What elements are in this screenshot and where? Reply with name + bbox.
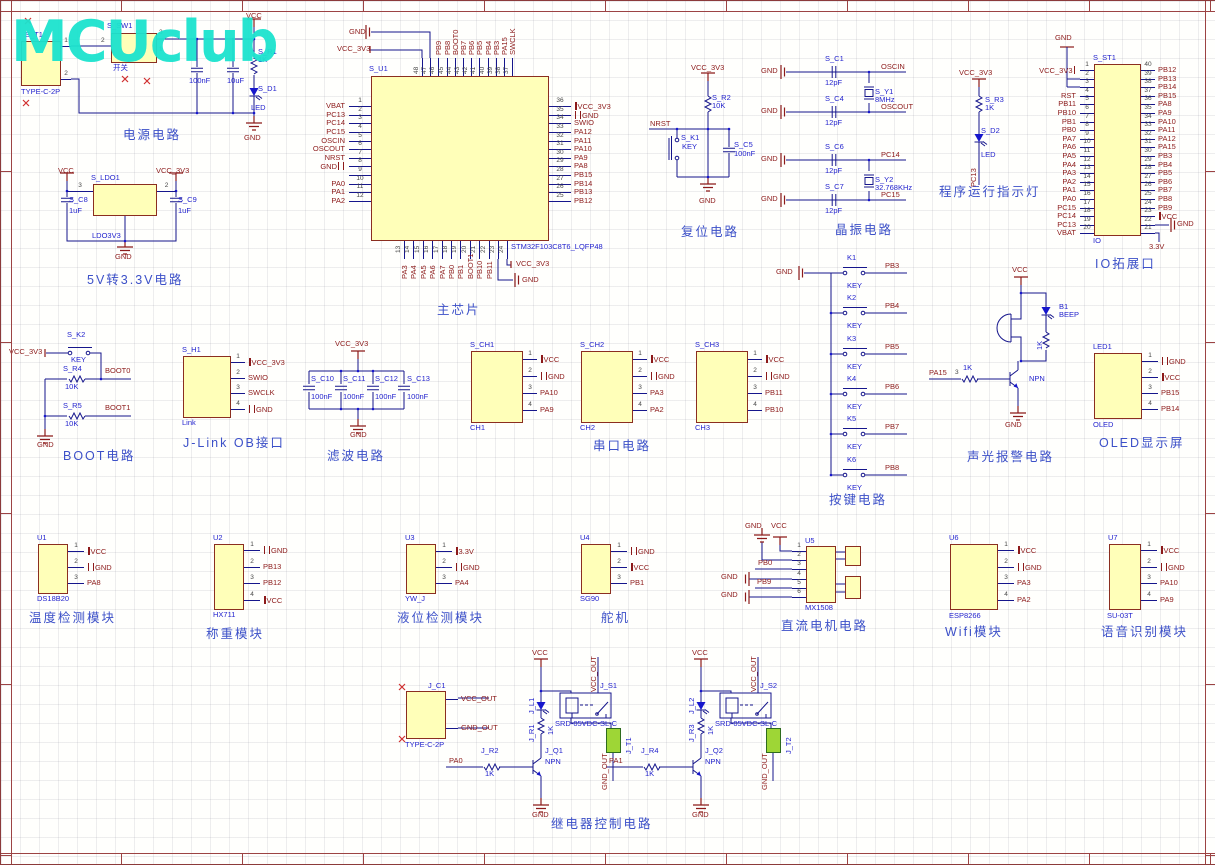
u6-partname: ESP8266 (949, 612, 981, 620)
st1-pin-number: 36 (1141, 95, 1155, 103)
led1-designator: LED1 (1093, 343, 1112, 351)
k1-des: S_K1 (681, 134, 699, 142)
k2-des: S_K2 (67, 331, 85, 339)
u3-pin-stub (436, 551, 452, 552)
jq1-des: J_Q1 (545, 747, 563, 755)
ch1-pin-stub (523, 376, 537, 377)
mainchip-net-text: PB14 (574, 179, 592, 188)
jr4-val: 1K (645, 770, 654, 778)
c7-val: 12pF (825, 207, 842, 215)
h1-body (183, 356, 231, 418)
mainchip-pin-number: 45 (438, 67, 446, 74)
u6-net-text: PA2 (1017, 595, 1031, 604)
u2-designator: U2 (213, 534, 223, 542)
ch1-net: PA9 (540, 406, 554, 414)
mainchip-net-text: PC14 (326, 118, 345, 127)
st1-pin-number: 10 (1080, 138, 1094, 146)
st1-pin-number: 39 (1141, 70, 1155, 78)
st1-pin-number: 4 (1080, 87, 1094, 95)
ch2-net: PA2 (650, 406, 664, 414)
ch3-pin-number: 1 (748, 350, 762, 358)
u3-partname: YW_J (405, 595, 425, 603)
r3-val: 1K (985, 104, 994, 112)
u6-net: PA2 (1017, 596, 1031, 604)
ch1-net-text: GND (548, 372, 565, 381)
k3b-net: PB5 (885, 343, 899, 351)
mainchip-net: PB12 (574, 197, 592, 205)
mainchip-net: PB0 (448, 265, 456, 279)
jt2-des: J_T2 (785, 737, 793, 754)
st1-pin-number: 40 (1141, 61, 1155, 69)
jr2-val: 1K (485, 770, 494, 778)
u2-pin-stub (244, 583, 260, 584)
js1-des: J_S1 (600, 682, 617, 690)
mainchip-pin-number: 3 (349, 114, 371, 122)
k2b-net: PB4 (885, 302, 899, 310)
k1-sub: KEY (682, 143, 697, 151)
u4-net: GND (630, 547, 655, 556)
mainchip-net: PB1 (457, 265, 465, 279)
ch2-net: VCC (650, 355, 669, 364)
h1-pin-stub (231, 393, 245, 394)
st1-pin-number: 16 (1080, 190, 1094, 198)
u7-pin-number: 4 (1141, 591, 1157, 599)
io-caption: IO拓展口 (1095, 257, 1156, 271)
jc1-designator: J_C1 (428, 682, 446, 690)
mainchip-net-text: OSCOUT (313, 144, 345, 153)
boot-vcc: VCC_3V3 (9, 348, 42, 356)
mainchip-net-text: OSCIN (321, 136, 345, 145)
h1-net: VCC_3V3 (248, 358, 285, 367)
ch3-net: VCC (765, 355, 784, 364)
mot-caption: 直流电机电路 (781, 619, 868, 633)
ch2-pin-number: 1 (633, 350, 647, 358)
k3b-sub: KEY (847, 363, 862, 371)
c7-des: S_C7 (825, 183, 844, 191)
u7-designator: U7 (1108, 534, 1118, 542)
ch3-pin-stub (748, 359, 762, 360)
mainchip-net-text: PB12 (574, 196, 592, 205)
led1-pin-stub (1142, 393, 1158, 394)
ldo-net: LDO3V3 (92, 232, 121, 240)
ser-caption: 串口电路 (593, 439, 651, 453)
gnd-symbol-icon (264, 546, 270, 554)
ch1-net-text: VCC (544, 355, 560, 364)
u1-pin-stub (68, 567, 84, 568)
st1-pin-number: 21 (1141, 224, 1155, 232)
u4-pin-number: 2 (611, 558, 627, 566)
xt-gnd2: GND (761, 107, 778, 115)
u7-pin-number: 3 (1141, 574, 1157, 582)
led1-pin-number: 2 (1142, 368, 1158, 376)
u2-pin-stub (244, 550, 260, 551)
boot-gnd: GND (37, 441, 54, 449)
u3-pin-stub (436, 583, 452, 584)
ch2-pin-stub (633, 393, 647, 394)
mcuclub-watermark: MCUclub (11, 9, 277, 75)
u4-net: VCC (630, 563, 649, 572)
u7-partname: SU-03T (1107, 612, 1133, 620)
mainchip-pin-number: 15 (414, 246, 422, 253)
u1-net: PA8 (87, 579, 101, 587)
st1-designator: S_ST1 (1093, 54, 1116, 62)
h1-pin-stub (231, 362, 245, 363)
mainchip-net-text: PA1 (331, 187, 345, 196)
u4-partname: SG90 (580, 595, 599, 603)
u2-net-text: VCC (267, 596, 283, 605)
c8-des: S_C8 (69, 196, 88, 204)
mainchip-net-text: PA10 (574, 144, 592, 153)
alm-gnd: GND (1005, 421, 1022, 429)
u2-pin-stub (244, 567, 260, 568)
xt-gnd4: GND (761, 195, 778, 203)
st1-pin-number: 18 (1080, 207, 1094, 215)
u1-pin-number: 3 (68, 574, 84, 582)
led1-net: PB15 (1161, 389, 1179, 397)
u5-pin-number: 2 (792, 551, 806, 559)
st1-pin-number: 20 (1080, 224, 1094, 232)
jr3-des: J_R3 (688, 724, 696, 742)
ch3-pin-number: 3 (748, 384, 762, 392)
mainchip-pin-number: 28 (549, 166, 571, 174)
led1-pin-number: 1 (1142, 352, 1158, 360)
u6-pin-number: 2 (998, 558, 1014, 566)
ch3-net: GND (765, 372, 790, 381)
mainchip-pin-number: 37 (503, 67, 511, 74)
ch1-body (471, 351, 523, 423)
mainchip-pin-stub (549, 201, 571, 202)
mainchip-pin-number: 1 (349, 97, 371, 105)
led1-net: GND (1161, 357, 1186, 366)
st1-pin-number: 29 (1141, 156, 1155, 164)
st1-pin-number: 11 (1080, 147, 1094, 155)
u6-pin-stub (998, 567, 1014, 568)
ch3-body (696, 351, 748, 423)
jc1-net: VCC_OUT (461, 695, 497, 703)
u1-body (38, 544, 68, 594)
u3-net-text: GND (463, 563, 480, 572)
ch2-body (581, 351, 633, 423)
u3-net: GND (455, 563, 480, 572)
jlink-caption: J-Link OB接口 (183, 436, 285, 450)
mainchip-net: PA3 (401, 265, 409, 279)
u6-pin-number: 1 (998, 541, 1014, 549)
jq2-sub: NPN (705, 758, 721, 766)
u2-pin-number: 1 (244, 541, 260, 549)
gt1-body (606, 728, 621, 753)
mainchip-pin-number: 32 (549, 132, 571, 140)
power-bar-icon (651, 355, 653, 363)
xt-gnd1: GND (761, 67, 778, 75)
c6-des: S_C6 (825, 143, 844, 151)
r4-val: 10K (65, 383, 78, 391)
u7-net-text: VCC (1164, 546, 1180, 555)
h1-pin-number: 2 (231, 369, 245, 377)
r2-val: 10K (712, 102, 725, 110)
k4b-des: K4 (847, 375, 856, 383)
st1-pin-number: 37 (1141, 87, 1155, 95)
chip-vcc-bot: VCC_3V3 (516, 260, 549, 268)
u3-body (406, 544, 436, 594)
led1-net-text: VCC (1165, 373, 1181, 382)
mainchip-net: PB10 (476, 261, 484, 279)
power-bar-icon (1162, 373, 1164, 381)
ch3-net: PB11 (765, 389, 783, 397)
alm-vcc: VCC (1012, 266, 1028, 274)
power-bar-icon (1074, 66, 1076, 74)
xt-caption: 晶振电路 (835, 223, 893, 237)
mainchip-partname: STM32F103C8T6_LQFP48 (511, 243, 603, 251)
jq1-sub: NPN (545, 758, 561, 766)
u3-net: 3.3V (455, 547, 474, 556)
u7-net-text: PA10 (1160, 578, 1178, 587)
mot-gnd-top: GND (745, 522, 762, 530)
ch2-designator: S_CH2 (580, 341, 604, 349)
ldo-vcc3v3: VCC_3V3 (156, 167, 189, 175)
u1-partname: DS18B20 (37, 595, 69, 603)
ch1-pin-stub (523, 410, 537, 411)
st1-net-text: VCC (1162, 212, 1178, 221)
gnd-symbol-icon (1018, 563, 1024, 571)
c10-des: S_C10 (311, 375, 334, 383)
mainchip-pin-number: 38 (495, 67, 503, 74)
u4-pin-stub (611, 567, 627, 568)
st1-pin-number: 9 (1080, 130, 1094, 138)
k2b-sub: KEY (847, 322, 862, 330)
jc1-net-text: GND_OUT (461, 723, 498, 732)
u7-net: PA9 (1160, 596, 1174, 604)
mainchip-net: GND (295, 162, 345, 171)
mainchip-pin-number: 17 (433, 246, 441, 253)
st1-net-text: VCC_3V3 (1039, 66, 1072, 75)
k4b-sub: KEY (847, 403, 862, 411)
mainchip-pin-number: 18 (442, 246, 450, 253)
k2-sub: KEY (71, 356, 86, 364)
jr1-val: 1K (547, 726, 555, 735)
key-caption: 按键电路 (829, 493, 887, 507)
ch2-pin-stub (633, 376, 647, 377)
st1-pin-number: 28 (1141, 164, 1155, 172)
vccout2: VCC_OUT (750, 656, 758, 692)
u2-pin-stub (244, 600, 260, 601)
st1-pin-number: 22 (1141, 216, 1155, 224)
r4-des: S_R4 (63, 365, 82, 373)
oled-caption: OLED显示屏 (1099, 436, 1185, 450)
d1-sub: LED (251, 104, 266, 112)
ch2-net: PA3 (650, 389, 664, 397)
ch3-net-text: PB10 (765, 405, 783, 414)
mainchip-net: PA6 (429, 265, 437, 279)
u1-pin-stub (68, 583, 84, 584)
led1-net: PB14 (1161, 405, 1179, 413)
jl1-des: J_L1 (528, 698, 536, 714)
ch1-pin-number: 2 (523, 367, 537, 375)
mainchip-pin-number: 16 (423, 246, 431, 253)
ch2-pin-number: 3 (633, 384, 647, 392)
ch2-pin-number: 4 (633, 401, 647, 409)
power-bar-icon (541, 355, 543, 363)
u7-body (1109, 544, 1141, 610)
mainchip-pin-number: 36 (549, 97, 571, 105)
mainchip-net-text: PA11 (574, 136, 591, 145)
jc1-pin-stub (446, 699, 458, 700)
u6-pin-stub (998, 550, 1014, 551)
jr1-des: J_R1 (528, 724, 536, 742)
u3-pin-number: 3 (436, 574, 452, 582)
st1-pin-number: 30 (1141, 147, 1155, 155)
u2-partname: HX711 (213, 611, 235, 619)
led1-pin-number: 4 (1142, 400, 1158, 408)
gnd-symbol-icon (541, 372, 547, 380)
st1-pin-number: 31 (1141, 138, 1155, 146)
jq2-des: J_Q2 (705, 747, 723, 755)
st1-body (1094, 64, 1141, 236)
io-3v3: 3.3V (1149, 243, 1164, 251)
u2-net: VCC (263, 596, 282, 605)
mainchip-pin-number: 20 (461, 246, 469, 253)
chip-gnd-top: GND (349, 28, 366, 36)
st1-net: PB9 (1158, 204, 1172, 212)
jr2-des: J_R2 (481, 747, 499, 755)
voice-caption: 语音识别模块 (1101, 625, 1188, 639)
boot0-net: BOOT0 (105, 367, 130, 375)
led1-pin-stub (1142, 361, 1158, 362)
u5-body (806, 546, 836, 603)
mainchip-pin-number: 19 (451, 246, 459, 253)
sheet-border-left (1, 1, 12, 864)
alm-npn: NPN (1029, 375, 1045, 383)
mainchip-pin-number: 42 (462, 67, 470, 74)
u6-body (950, 544, 998, 610)
jr4-des: J_R4 (641, 747, 659, 755)
c11-val: 100nF (343, 393, 364, 401)
u4-pin-stub (611, 583, 627, 584)
power-bar-icon (88, 547, 90, 555)
u1-net-text: VCC (91, 547, 107, 556)
power-bar-icon (766, 355, 768, 363)
mainchip-pin-number: 34 (549, 114, 571, 122)
gnd-symbol-icon (766, 372, 772, 380)
c10-val: 100nF (311, 393, 332, 401)
st1-pin-number: 25 (1141, 190, 1155, 198)
u1-pin-number: 1 (68, 542, 84, 550)
js2-des: J_S2 (760, 682, 777, 690)
jt1-des: J_T1 (625, 737, 633, 754)
power-bar-icon (264, 596, 266, 604)
st1-pin-number: 32 (1141, 130, 1155, 138)
mainchip-pin-number: 33 (549, 123, 571, 131)
power-caption: 电源电路 (123, 128, 181, 142)
mainchip-net-text: PA9 (574, 153, 588, 162)
u4-net: PB1 (630, 579, 644, 587)
gnd-symbol-icon (88, 563, 94, 571)
ch1-pin-number: 3 (523, 384, 537, 392)
st1-pin-number: 26 (1141, 181, 1155, 189)
u5-designator: U5 (805, 537, 815, 545)
ch3-net-text: GND (773, 372, 790, 381)
mainchip-designator: S_U1 (369, 65, 388, 73)
u4-pin-stub (611, 551, 627, 552)
ch2-net-text: GND (658, 372, 675, 381)
ldo1-designator: S_LDO1 (91, 174, 120, 182)
mainchip-pin-number: 23 (489, 246, 497, 253)
led1-net-text: PB14 (1161, 404, 1179, 413)
ch1-pin-stub (523, 359, 537, 360)
mainchip-pin-number: 6 (349, 140, 371, 148)
rst-gnd: GND (699, 197, 716, 205)
k6b-sub: KEY (847, 484, 862, 492)
u7-net: GND (1160, 563, 1185, 572)
io-gnd-top: GND (1055, 34, 1072, 42)
schematic-sheet[interactable]: MCUclub (0, 0, 1215, 865)
mainchip-pin-stub (349, 201, 371, 202)
st1-net: VCC (1158, 212, 1177, 221)
u4-net-text: PB1 (630, 578, 644, 587)
k6b-des: K6 (847, 456, 856, 464)
h1-pin-number: 4 (231, 400, 245, 408)
ch2-partname: CH2 (580, 424, 595, 432)
ch3-designator: S_CH3 (695, 341, 719, 349)
led1-pin-number: 3 (1142, 384, 1158, 392)
u4-pin-number: 3 (611, 574, 627, 582)
k5b-sub: KEY (847, 443, 862, 451)
r5-des: S_R5 (63, 402, 82, 410)
mainchip-pin-number: 43 (454, 67, 462, 74)
gnd-symbol-icon (631, 547, 637, 555)
u6-pin-stub (998, 600, 1014, 601)
mainchip-net: PA5 (420, 265, 428, 279)
st1-pin-number: 7 (1080, 113, 1094, 121)
t1-partname: TYPE-C-2P (21, 88, 60, 96)
u5-pin-number: 5 (792, 579, 806, 587)
led1-net: VCC (1161, 373, 1180, 382)
st1-pin-number: 24 (1141, 199, 1155, 207)
chip-caption: 主芯片 (437, 303, 481, 317)
mainchip-pin-number: 47 (421, 67, 429, 74)
ch3-pin-number: 4 (748, 401, 762, 409)
mainchip-net: NRST (295, 154, 345, 162)
jr3-val: 1K (707, 726, 715, 735)
st1-pin-number: 6 (1080, 104, 1094, 112)
u7-net: VCC (1160, 546, 1179, 555)
rel-pa1: PA1 (609, 757, 623, 765)
u7-pin-stub (1141, 583, 1157, 584)
xt-oscin: OSCIN (881, 63, 905, 71)
h1-partname: Link (182, 419, 196, 427)
u2-net-text: GND (271, 546, 288, 555)
u5-pin-stub (792, 597, 806, 598)
mainchip-pin-number: 5 (349, 132, 371, 140)
u6-designator: U6 (949, 534, 959, 542)
jc1-net: GND_OUT (461, 724, 498, 732)
u5-pin-number: 3 (792, 560, 806, 568)
sheet-border-right (1205, 1, 1215, 864)
alm-rb-val: 1K (963, 364, 972, 372)
u5-pin-number: 6 (792, 588, 806, 596)
st1-pin-number: 12 (1080, 156, 1094, 164)
ch2-net-text: VCC (654, 355, 670, 364)
mainchip-pin-number: 39 (487, 67, 495, 74)
u7-pin-stub (1141, 550, 1157, 551)
u1-designator: U1 (37, 534, 47, 542)
u4-body (581, 544, 611, 594)
u3-pin-number: 2 (436, 558, 452, 566)
ldo1-body (93, 184, 157, 216)
ch1-net-text: PA10 (540, 388, 558, 397)
ch3-pin-stub (748, 410, 762, 411)
xt-gnd3: GND (761, 155, 778, 163)
gnd-symbol-icon (1161, 563, 1167, 571)
